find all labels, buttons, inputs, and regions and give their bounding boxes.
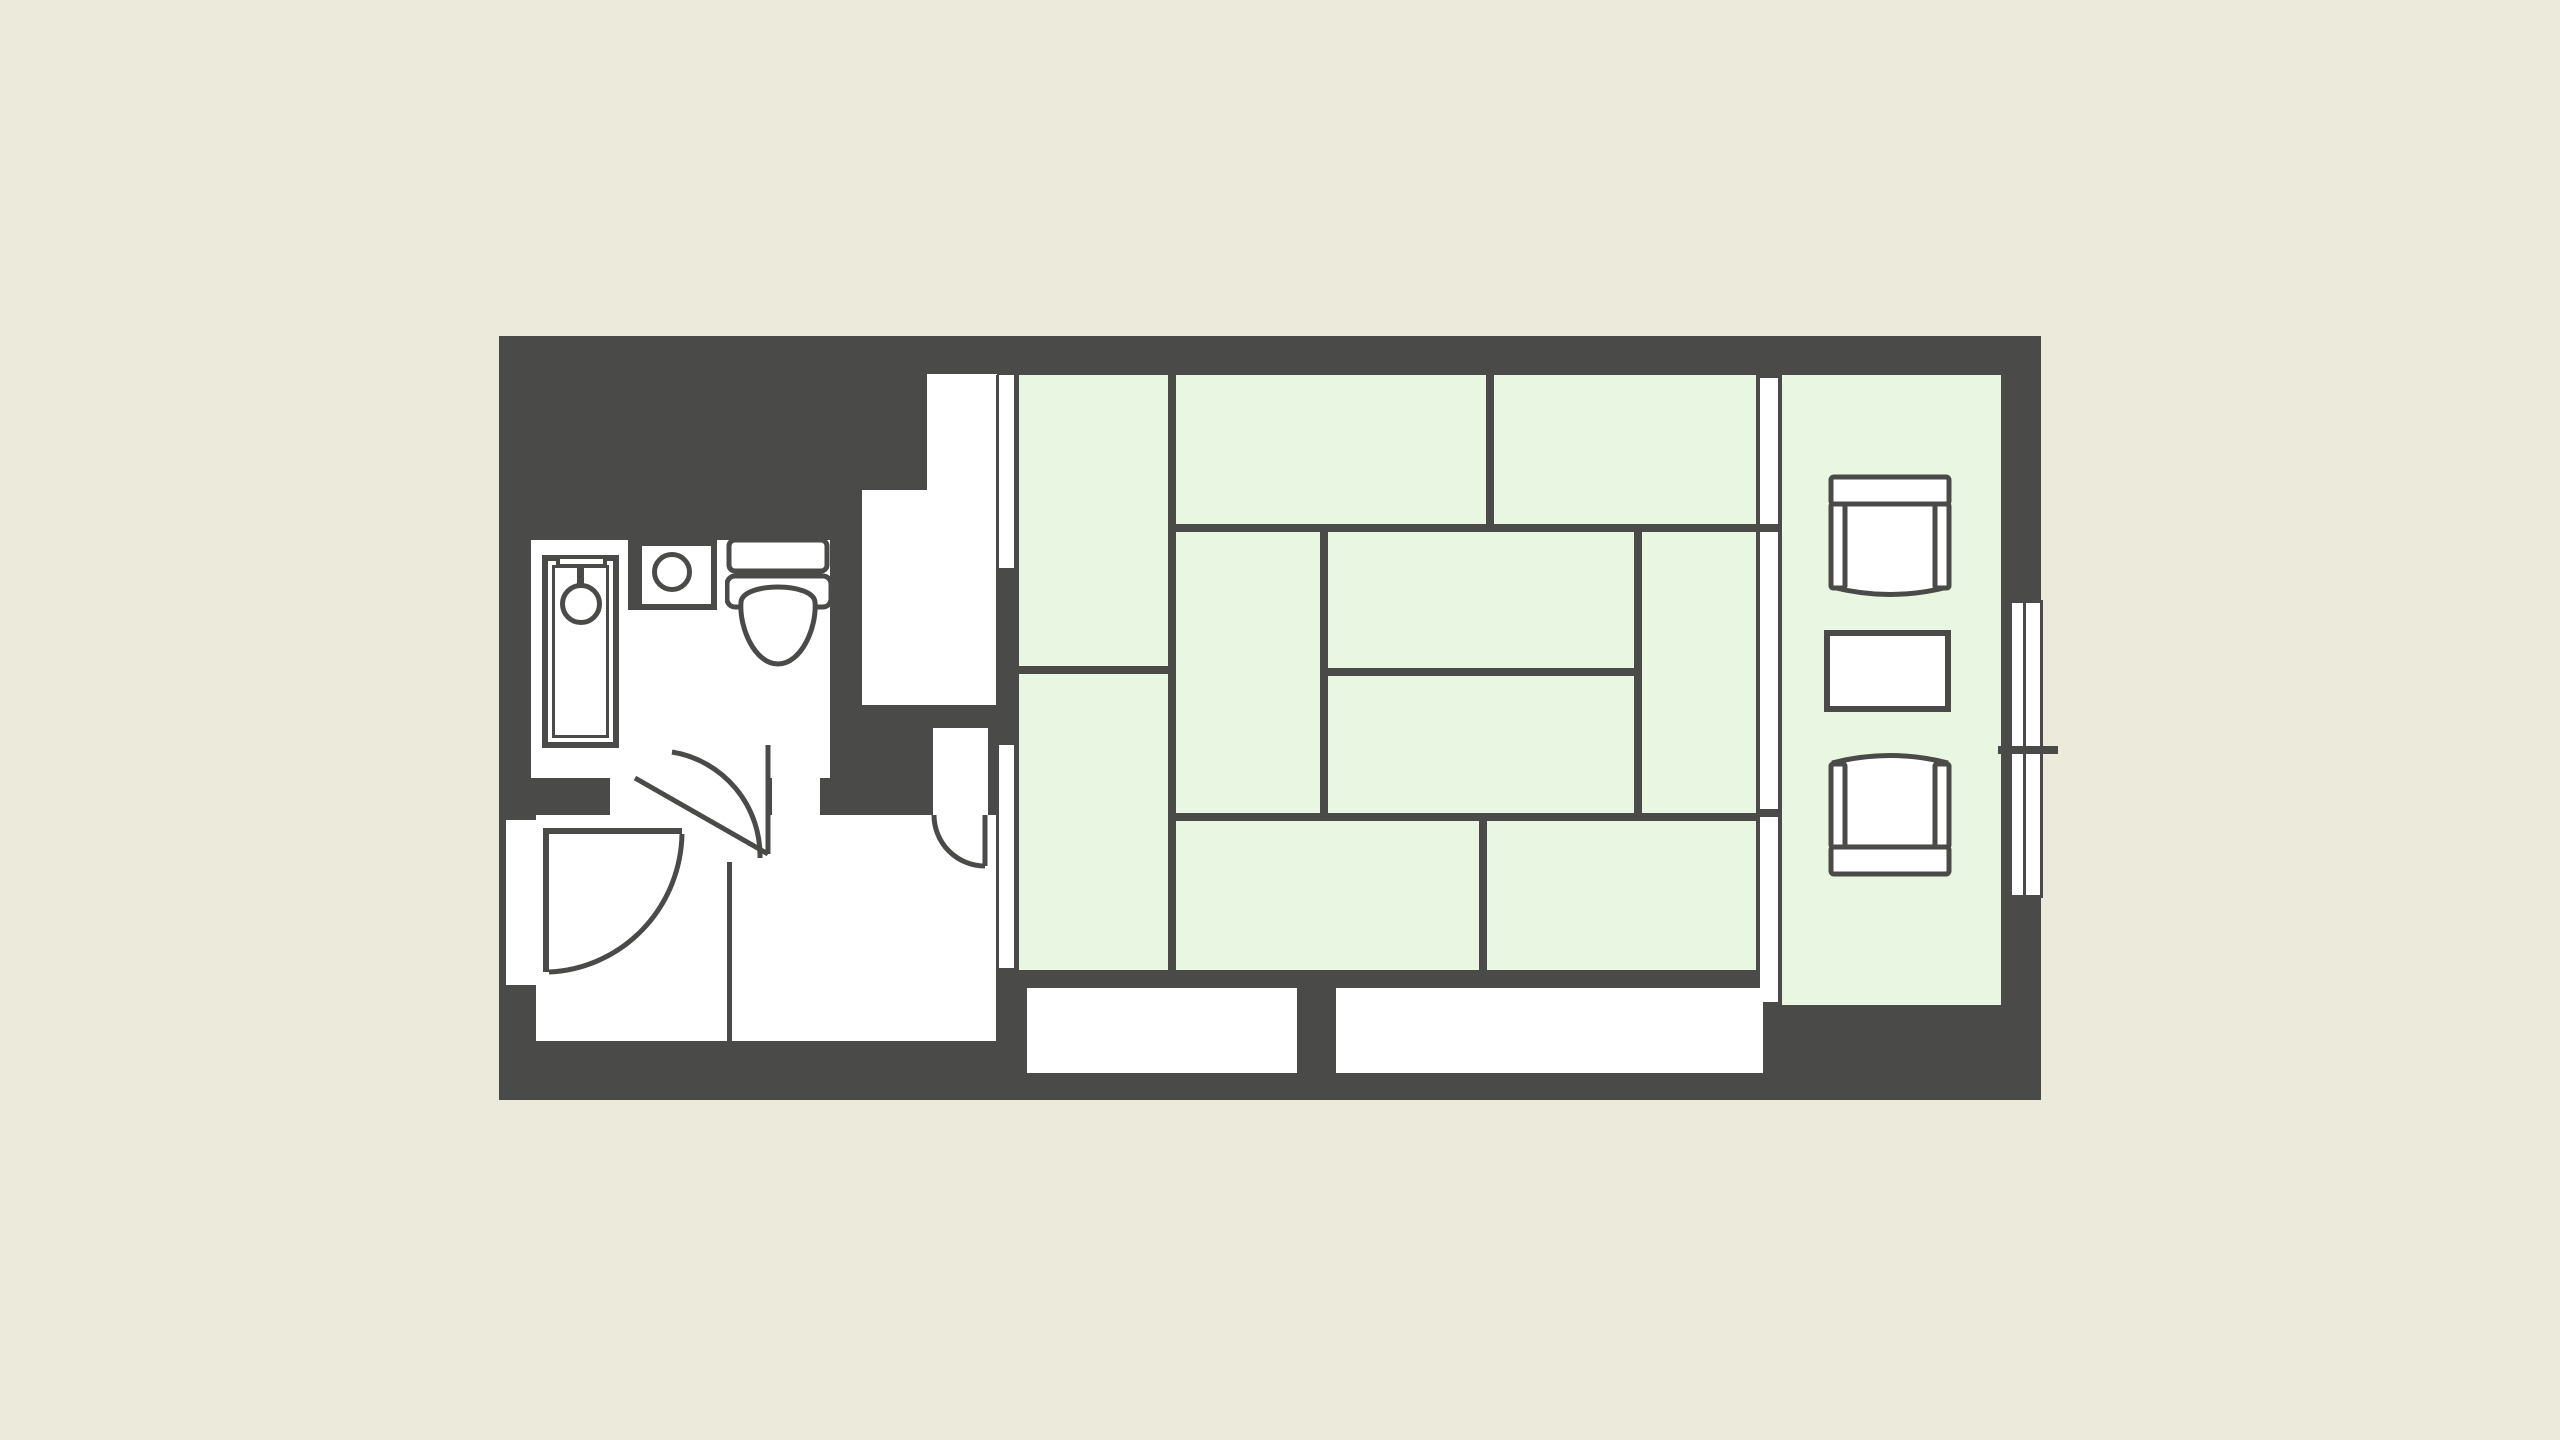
chair-backrest: [1831, 477, 1949, 504]
chair-backrest: [1831, 847, 1949, 874]
toilet-tank: [729, 540, 827, 571]
chair-armrest-right: [1935, 504, 1949, 588]
chair-seat-fill: [1834, 757, 1946, 845]
toilet-icon: [725, 536, 835, 671]
side-table: [1824, 630, 1951, 712]
closet-left: [1027, 988, 1297, 1073]
entrance-opening: [506, 820, 536, 985]
fusuma-door-lower-left: [999, 745, 1014, 968]
shower-head-icon: [560, 583, 602, 625]
corridor-doorway-recess: [933, 728, 988, 815]
chair-armrest-left: [1831, 764, 1845, 847]
door-slot: [772, 745, 820, 815]
mat-line-row-a: [1172, 524, 1756, 532]
balcony-window-tick: [1998, 746, 2058, 754]
bathroom-door-gap: [610, 778, 770, 815]
corridor-nook-narrow: [927, 374, 997, 490]
sink-basin-icon: [652, 552, 692, 592]
tub-sink-wall-stub: [628, 540, 636, 610]
hallway-genkan-floor: [536, 815, 996, 1041]
chair-armrest-right: [1935, 764, 1949, 847]
mat-line-bottom-divider: [1479, 817, 1487, 970]
chair-armrest-left: [1831, 504, 1845, 588]
closet-right: [1336, 988, 1763, 1073]
chair-seat-fill: [1834, 506, 1946, 594]
mat-line-top-divider: [1486, 375, 1494, 528]
mat-line-row-b-left: [1019, 666, 1172, 674]
corridor-nook-wide: [862, 490, 997, 705]
fusuma-door-upper-left: [999, 375, 1014, 568]
armchair-top-icon: [1824, 471, 1956, 603]
genkan-step-divider: [727, 862, 732, 1041]
floorplan-canvas: [499, 336, 2041, 1100]
toilet-bowl: [741, 587, 815, 664]
page-background: { "title": "", "colors": { "bg": "#ECEAD…: [0, 0, 2560, 1440]
mat-line-row-b-center: [1324, 668, 1638, 676]
armchair-bottom-icon: [1824, 747, 1956, 879]
shoji-door-right: [1760, 378, 1778, 1002]
mat-line-row-c: [1172, 813, 1756, 821]
